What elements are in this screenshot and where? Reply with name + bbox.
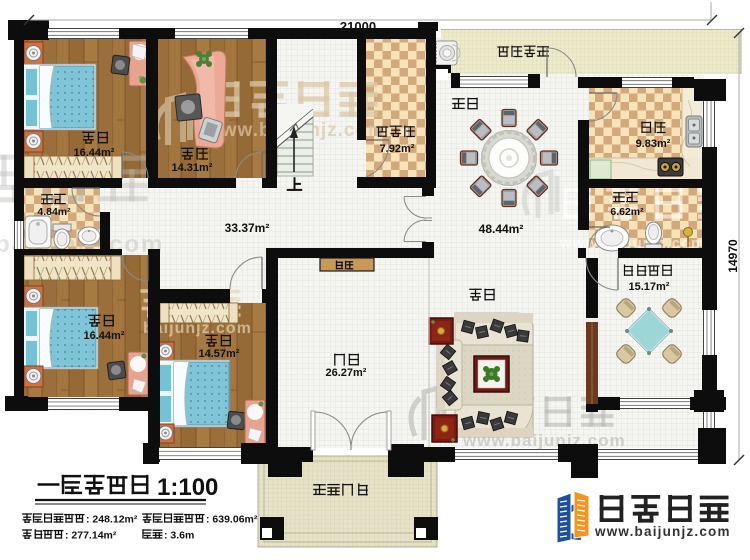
svg-text:16.44m²: 16.44m² — [74, 147, 115, 159]
svg-text:15.17m²: 15.17m² — [629, 281, 670, 293]
svg-text:6.62m²: 6.62m² — [610, 206, 644, 218]
svg-text:1:100: 1:100 — [157, 474, 218, 501]
svg-text:: 3.6m: : 3.6m — [164, 530, 194, 542]
svg-text:14.31m²: 14.31m² — [172, 162, 213, 174]
svg-text:21000: 21000 — [340, 19, 376, 34]
svg-text:7.92m²: 7.92m² — [380, 143, 415, 155]
svg-text:: 248.12m²: : 248.12m² — [86, 514, 138, 526]
svg-text:14970: 14970 — [726, 239, 740, 273]
svg-text:26.27m²: 26.27m² — [326, 367, 367, 379]
svg-text:48.44m²: 48.44m² — [479, 222, 524, 236]
svg-text:14.57m²: 14.57m² — [199, 348, 240, 360]
svg-text:16.44m²: 16.44m² — [84, 330, 125, 342]
svg-text:www.baijunjz.com: www.baijunjz.com — [594, 524, 731, 539]
svg-text:9.83m²: 9.83m² — [636, 138, 671, 150]
svg-text:: 639.06m²: : 639.06m² — [206, 514, 258, 526]
svg-text:33.37m²: 33.37m² — [225, 221, 270, 235]
svg-text:: 277.14m²: : 277.14m² — [65, 530, 117, 542]
